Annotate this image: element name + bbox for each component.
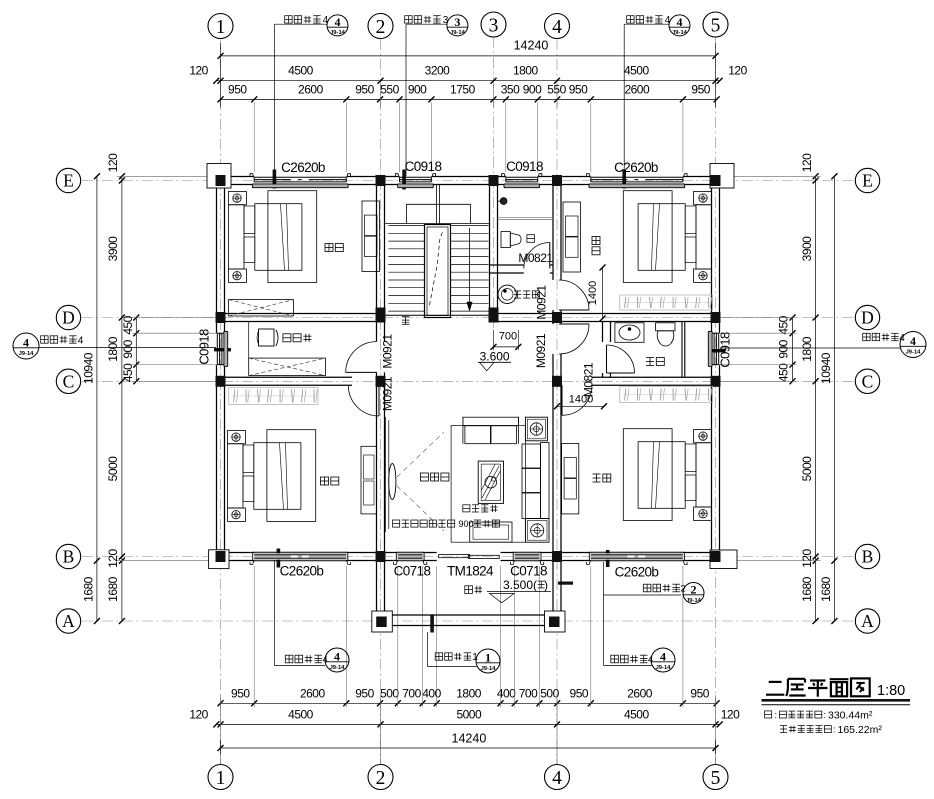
svg-text:120: 120 <box>800 549 814 568</box>
svg-text:14240: 14240 <box>452 731 487 745</box>
svg-text:A: A <box>62 611 75 631</box>
svg-text:550: 550 <box>380 82 399 96</box>
svg-text:120: 120 <box>106 549 120 568</box>
svg-text:5: 5 <box>711 768 721 789</box>
svg-text:2: 2 <box>376 768 386 789</box>
svg-text:1: 1 <box>485 651 491 665</box>
svg-text:4: 4 <box>552 768 562 789</box>
svg-text:900: 900 <box>408 82 427 96</box>
svg-text:1400: 1400 <box>587 281 599 305</box>
svg-text::: : <box>775 710 778 720</box>
svg-text:700: 700 <box>519 687 538 701</box>
svg-text:C0718: C0718 <box>394 564 431 579</box>
svg-text:900: 900 <box>523 82 542 96</box>
svg-text:950: 950 <box>355 82 374 96</box>
svg-text:5000: 5000 <box>456 708 482 722</box>
svg-text:700: 700 <box>499 331 517 343</box>
svg-text:4: 4 <box>334 650 340 664</box>
svg-text:J9-14: J9-14 <box>656 665 672 671</box>
svg-text:1: 1 <box>216 17 226 38</box>
svg-text:4: 4 <box>78 336 84 347</box>
svg-text:4: 4 <box>552 17 562 38</box>
svg-text:M0921: M0921 <box>381 334 395 369</box>
svg-text:950: 950 <box>691 82 710 96</box>
svg-text:450: 450 <box>777 315 791 334</box>
svg-text:4: 4 <box>23 336 29 350</box>
svg-text:1: 1 <box>472 652 478 663</box>
svg-text:C2620b: C2620b <box>615 565 659 580</box>
svg-text:C2620b: C2620b <box>614 160 658 175</box>
svg-text:120: 120 <box>800 153 814 172</box>
svg-text:950: 950 <box>231 687 250 701</box>
svg-text:C2620b: C2620b <box>280 564 324 579</box>
svg-text:TM1824: TM1824 <box>447 564 494 579</box>
svg-text:E: E <box>63 171 74 191</box>
svg-text:165.22m²: 165.22m² <box>838 724 883 736</box>
svg-text:C0918: C0918 <box>506 159 543 174</box>
svg-text:950: 950 <box>690 687 709 701</box>
svg-text:J9-14: J9-14 <box>330 30 346 36</box>
svg-text:1800: 1800 <box>800 336 814 362</box>
svg-text:M0921: M0921 <box>381 376 395 411</box>
svg-text:1750: 1750 <box>450 82 476 96</box>
svg-text:A: A <box>861 611 874 631</box>
svg-text:450: 450 <box>121 315 135 334</box>
svg-text:4: 4 <box>660 650 666 664</box>
svg-text:J9-14: J9-14 <box>906 349 922 355</box>
svg-text:D: D <box>62 308 75 328</box>
svg-text:C: C <box>63 371 75 391</box>
svg-text:400: 400 <box>422 687 441 701</box>
svg-text:M0921: M0921 <box>535 285 549 320</box>
svg-text:2600: 2600 <box>624 82 650 96</box>
svg-text::: : <box>833 725 836 735</box>
svg-text:950: 950 <box>228 82 247 96</box>
svg-text:3: 3 <box>489 15 499 36</box>
svg-text:450: 450 <box>777 363 791 382</box>
svg-text:120: 120 <box>721 708 740 722</box>
svg-text:120: 120 <box>189 64 208 78</box>
svg-text:950: 950 <box>355 687 374 701</box>
svg-text:120: 120 <box>189 708 208 722</box>
svg-text:1680: 1680 <box>800 576 814 602</box>
svg-text:1800: 1800 <box>513 64 539 78</box>
svg-text:M0821: M0821 <box>582 362 596 397</box>
svg-text:M0821: M0821 <box>518 251 553 265</box>
svg-text:1800: 1800 <box>456 687 482 701</box>
svg-text:J9-14: J9-14 <box>330 665 346 671</box>
svg-text:10940: 10940 <box>82 352 96 384</box>
svg-text:C0918: C0918 <box>405 159 442 174</box>
svg-text:1680: 1680 <box>819 576 833 602</box>
svg-text:1:80: 1:80 <box>877 683 905 699</box>
svg-text:120: 120 <box>106 153 120 172</box>
svg-text:J9-14: J9-14 <box>19 351 35 357</box>
svg-text:330.44m²: 330.44m² <box>828 709 873 721</box>
svg-text:2600: 2600 <box>300 687 326 701</box>
svg-text:1680: 1680 <box>106 576 120 602</box>
svg-text:5: 5 <box>711 15 721 36</box>
svg-text:4500: 4500 <box>288 64 314 78</box>
svg-text:5000: 5000 <box>106 456 120 482</box>
svg-text:M0921: M0921 <box>534 333 548 368</box>
svg-text:3.600: 3.600 <box>480 350 510 364</box>
svg-text:B: B <box>862 547 874 567</box>
svg-text:2: 2 <box>691 583 697 597</box>
svg-text:4: 4 <box>677 15 683 29</box>
svg-text:14240: 14240 <box>514 39 549 53</box>
svg-text:120: 120 <box>728 64 747 78</box>
svg-text:4: 4 <box>335 15 341 29</box>
svg-text:1800: 1800 <box>106 336 120 362</box>
svg-text:1400: 1400 <box>569 394 593 406</box>
svg-text:D: D <box>861 308 874 328</box>
svg-text:4500: 4500 <box>624 64 650 78</box>
svg-text:950: 950 <box>570 687 589 701</box>
svg-text:E: E <box>862 171 873 191</box>
svg-text:2600: 2600 <box>627 687 653 701</box>
svg-text:500: 500 <box>380 687 399 701</box>
svg-text:900: 900 <box>777 339 791 358</box>
svg-text:1: 1 <box>216 768 226 789</box>
svg-text:700: 700 <box>402 687 421 701</box>
svg-text:C0918: C0918 <box>197 329 212 365</box>
svg-text:C2620b: C2620b <box>281 160 325 175</box>
svg-text:3900: 3900 <box>106 236 120 262</box>
svg-text:J9-14: J9-14 <box>450 30 466 36</box>
svg-text:5000: 5000 <box>800 456 814 482</box>
svg-text::: : <box>824 710 827 720</box>
svg-text:3900: 3900 <box>800 236 814 262</box>
svg-text:2: 2 <box>376 17 386 38</box>
svg-text:900: 900 <box>121 339 135 358</box>
svg-text:400: 400 <box>497 687 516 701</box>
svg-text:C: C <box>862 371 874 391</box>
svg-text:3: 3 <box>454 15 460 29</box>
svg-text:B: B <box>63 547 75 567</box>
svg-text:4: 4 <box>910 334 916 348</box>
svg-text:4500: 4500 <box>624 708 650 722</box>
svg-text:J9-14: J9-14 <box>481 666 497 672</box>
svg-text:J9-14: J9-14 <box>686 598 702 604</box>
svg-text:450: 450 <box>121 363 135 382</box>
svg-text:350: 350 <box>501 82 520 96</box>
svg-text:C0918: C0918 <box>718 332 733 368</box>
svg-text:950: 950 <box>569 82 588 96</box>
svg-text:4500: 4500 <box>288 708 314 722</box>
svg-text:3.500(: 3.500( <box>503 578 537 592</box>
svg-text:1680: 1680 <box>82 576 96 602</box>
svg-text:900: 900 <box>459 519 474 529</box>
svg-text:500: 500 <box>540 687 559 701</box>
svg-text:C0718: C0718 <box>510 564 547 579</box>
svg-text:3200: 3200 <box>425 64 451 78</box>
svg-text:10940: 10940 <box>819 352 833 384</box>
svg-text:2600: 2600 <box>298 82 324 96</box>
svg-text:J9-14: J9-14 <box>672 30 688 36</box>
svg-text:): ) <box>544 578 548 592</box>
